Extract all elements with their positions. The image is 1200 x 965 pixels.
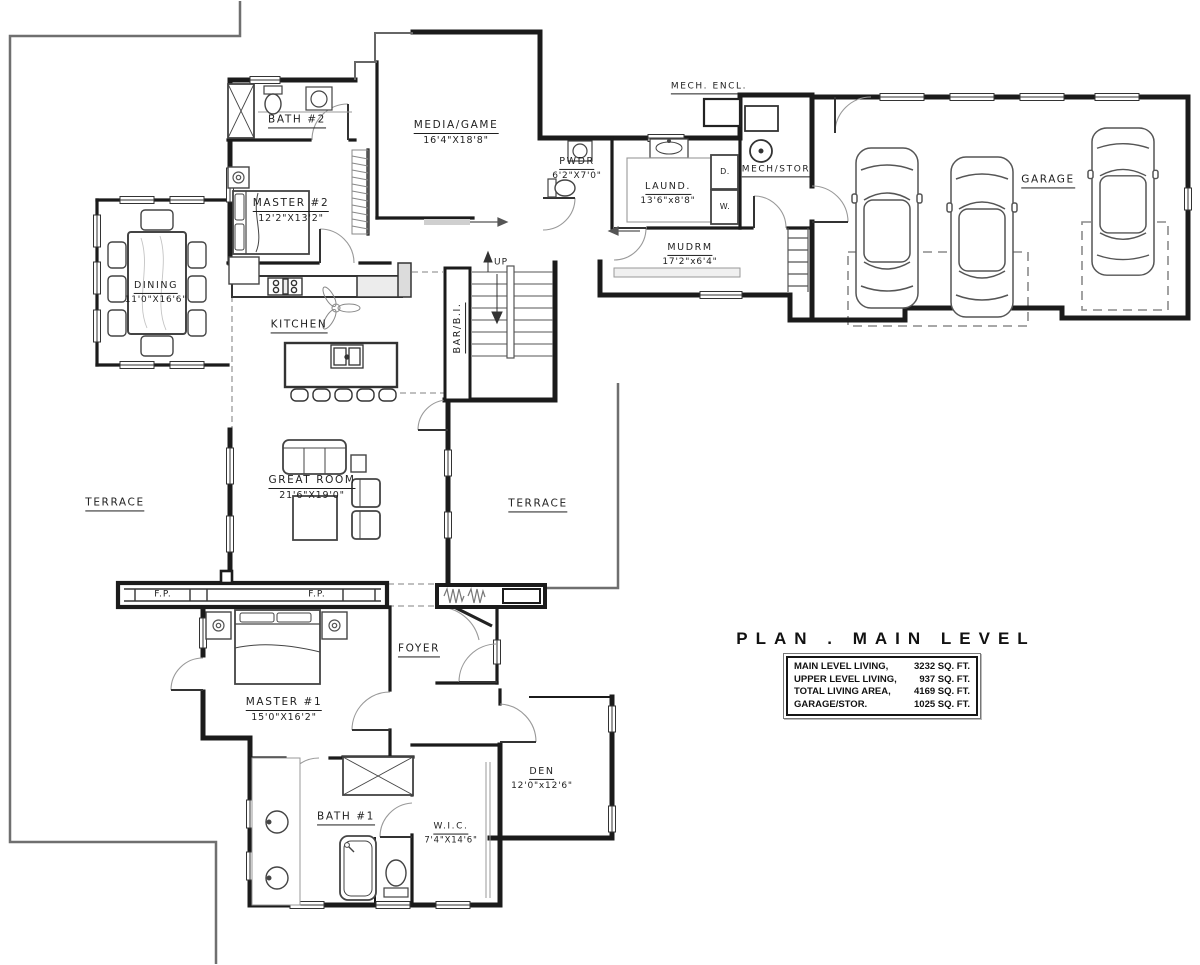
room-label-powder: PWDR 6'2"X7'0" — [552, 156, 602, 182]
area-row-value: 937 SQ. FT. — [919, 674, 970, 687]
mech-stor-equipment — [745, 106, 778, 162]
room-label-bath1: BATH #1 — [317, 810, 375, 825]
mech-encl-unit — [704, 99, 740, 126]
plan-title: PLAN . MAIN LEVEL — [736, 629, 1035, 649]
master1-bed — [206, 610, 347, 684]
island-sink-icon — [331, 345, 363, 368]
room-label-media-game: MEDIA/GAME 16'4"X18'8" — [414, 119, 499, 147]
master2-bed — [228, 167, 309, 284]
area-table-row: GARAGE/STOR. 1025 SQ. FT. — [794, 699, 970, 712]
fireplace-label-right: F.P. — [308, 589, 325, 600]
garage-steps — [788, 228, 808, 292]
area-row-label: GARAGE/STOR. — [794, 699, 867, 712]
area-table-row: MAIN LEVEL LIVING, 3232 SQ. FT. — [794, 661, 970, 674]
tub-icon — [340, 836, 376, 900]
room-label-master2: MASTER #2 12'2"X13'2" — [253, 197, 329, 225]
room-label-dining: DINING 11'0"X16'6" — [125, 280, 188, 306]
mudroom-bench — [614, 268, 740, 277]
master2-closet-shelving — [352, 150, 368, 234]
room-label-bar-bi: BAR/B.I. — [452, 303, 466, 354]
fireplace-label-left: F.P. — [154, 589, 171, 600]
area-row-label: MAIN LEVEL LIVING, — [794, 661, 888, 674]
island-stools — [291, 389, 396, 401]
bath1-fixtures — [252, 757, 413, 905]
room-label-garage: GARAGE — [1021, 173, 1075, 188]
bath2-fixtures — [228, 84, 352, 138]
floor-plan-canvas: BATH #2 MEDIA/GAME 16'4"X18'8" MECH. ENC… — [0, 0, 1200, 965]
area-summary-table: MAIN LEVEL LIVING, 3232 SQ. FT. UPPER LE… — [783, 653, 981, 719]
area-row-value: 4169 SQ. FT. — [914, 686, 970, 699]
toilet-icon — [384, 860, 408, 897]
room-label-foyer: FOYER — [398, 642, 440, 657]
room-label-master1: MASTER #1 15'0"X16'2" — [246, 696, 322, 724]
garage-cars — [852, 128, 1158, 317]
room-label-terrace-left: TERRACE — [85, 496, 144, 511]
room-label-kitchen: KITCHEN — [271, 318, 328, 333]
car-icon — [1088, 128, 1158, 275]
shower-icon — [343, 757, 413, 795]
area-row-value: 1025 SQ. FT. — [914, 699, 970, 712]
dashed-lines — [232, 272, 444, 606]
range-icon — [268, 278, 302, 295]
area-row-value: 3232 SQ. FT. — [914, 661, 970, 674]
area-table-row: TOTAL LIVING AREA, 4169 SQ. FT. — [794, 686, 970, 699]
room-label-laundry: LAUND. 13'6"x8'8" — [640, 181, 695, 207]
dryer-label: D. — [720, 167, 730, 177]
room-label-bath2: BATH #2 — [268, 113, 326, 128]
room-label-great-room: GREAT ROOM 21'6"X19'0" — [268, 474, 355, 502]
stairs-up-label: UP — [494, 257, 508, 268]
entry-wall — [437, 585, 545, 607]
room-label-mech-encl: MECH. ENCL. — [671, 81, 747, 94]
washer-label: W. — [720, 202, 731, 212]
wall-connectors — [355, 33, 413, 80]
room-label-wic: W.I.C. 7'4"X14'6" — [424, 822, 477, 847]
laundry-sink-icon — [650, 139, 688, 158]
wic-rod — [486, 762, 490, 898]
area-row-label: TOTAL LIVING AREA, — [794, 686, 891, 699]
room-label-mudroom: MUDRM 17'2"x6'4" — [662, 242, 717, 268]
car-icon — [852, 148, 922, 308]
toilet-icon — [264, 86, 282, 114]
floor-plan-drawing — [0, 0, 1200, 965]
room-label-den: DEN 12'0"x12'6" — [511, 766, 573, 792]
direction-arrows — [424, 218, 640, 235]
room-label-terrace-right: TERRACE — [508, 497, 567, 512]
area-table-row: UPPER LEVEL LIVING, 937 SQ. FT. — [794, 674, 970, 687]
sink-icon — [306, 87, 332, 110]
car-icon — [947, 157, 1017, 317]
room-label-mech-stor: MECH/STOR — [742, 164, 810, 177]
area-row-label: UPPER LEVEL LIVING, — [794, 674, 897, 687]
